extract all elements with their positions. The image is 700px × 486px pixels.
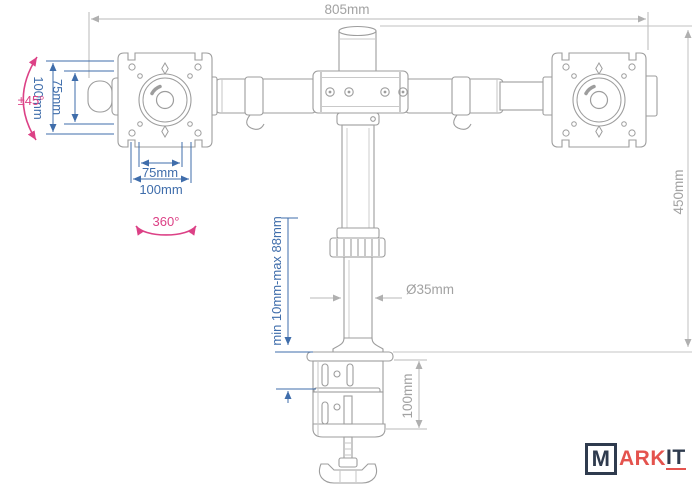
overall-height-label: 450mm xyxy=(671,169,686,214)
clamp-screw-rod xyxy=(344,396,352,424)
bar-end-cap xyxy=(88,81,112,112)
vesa-plate-left xyxy=(118,53,212,147)
pole-diameter-label: Ø35mm xyxy=(406,282,454,297)
pole-base xyxy=(333,338,383,352)
clamp-height-label: 100mm xyxy=(400,373,415,418)
rotation-angle-label: 360° xyxy=(153,214,180,229)
vesa-vertical-spacing-label: 75mm xyxy=(50,79,65,115)
dim-clamp-range: min 10mm-max 88mm xyxy=(269,216,316,403)
diagram-canvas: 805mm 450mm Ø35mm 100mm 100mm 75mm 75mm xyxy=(0,0,700,486)
logo-text-it: IT xyxy=(666,448,686,470)
clamp-top-plate xyxy=(307,352,393,361)
height-adjust-collar xyxy=(330,238,385,257)
vesa-plate-right xyxy=(552,53,646,147)
brand-logo: M ARK IT xyxy=(585,443,686,475)
rotation-annotation: 360° xyxy=(136,214,196,235)
center-joint xyxy=(313,27,408,126)
pole-clamp-collar xyxy=(337,113,379,125)
vesa-horizontal-spacing-label: 75mm xyxy=(142,165,178,180)
logo-m-mark: M xyxy=(585,443,617,475)
tilt-angle-label: ±45° xyxy=(18,93,45,108)
bar-length-label: 805mm xyxy=(324,2,369,17)
vesa-plate-width-label: 100mm xyxy=(139,182,182,197)
tilt-annotation: ±45° xyxy=(18,57,45,140)
logo-text-ark: ARK xyxy=(619,447,666,471)
pole-top-cap xyxy=(339,31,376,73)
dim-clamp-height: 100mm xyxy=(386,360,427,429)
clamp-range-label: min 10mm-max 88mm xyxy=(269,216,284,345)
cable-clip-left xyxy=(245,77,264,129)
monitor-mount-diagram: 805mm 450mm Ø35mm 100mm 100mm 75mm 75mm xyxy=(0,0,700,486)
pole xyxy=(330,125,385,352)
dim-pole-diameter: Ø35mm xyxy=(310,282,454,298)
cable-clip-right xyxy=(452,77,471,129)
dim-vesa-horizontal-spacing: 75mm xyxy=(139,142,182,180)
